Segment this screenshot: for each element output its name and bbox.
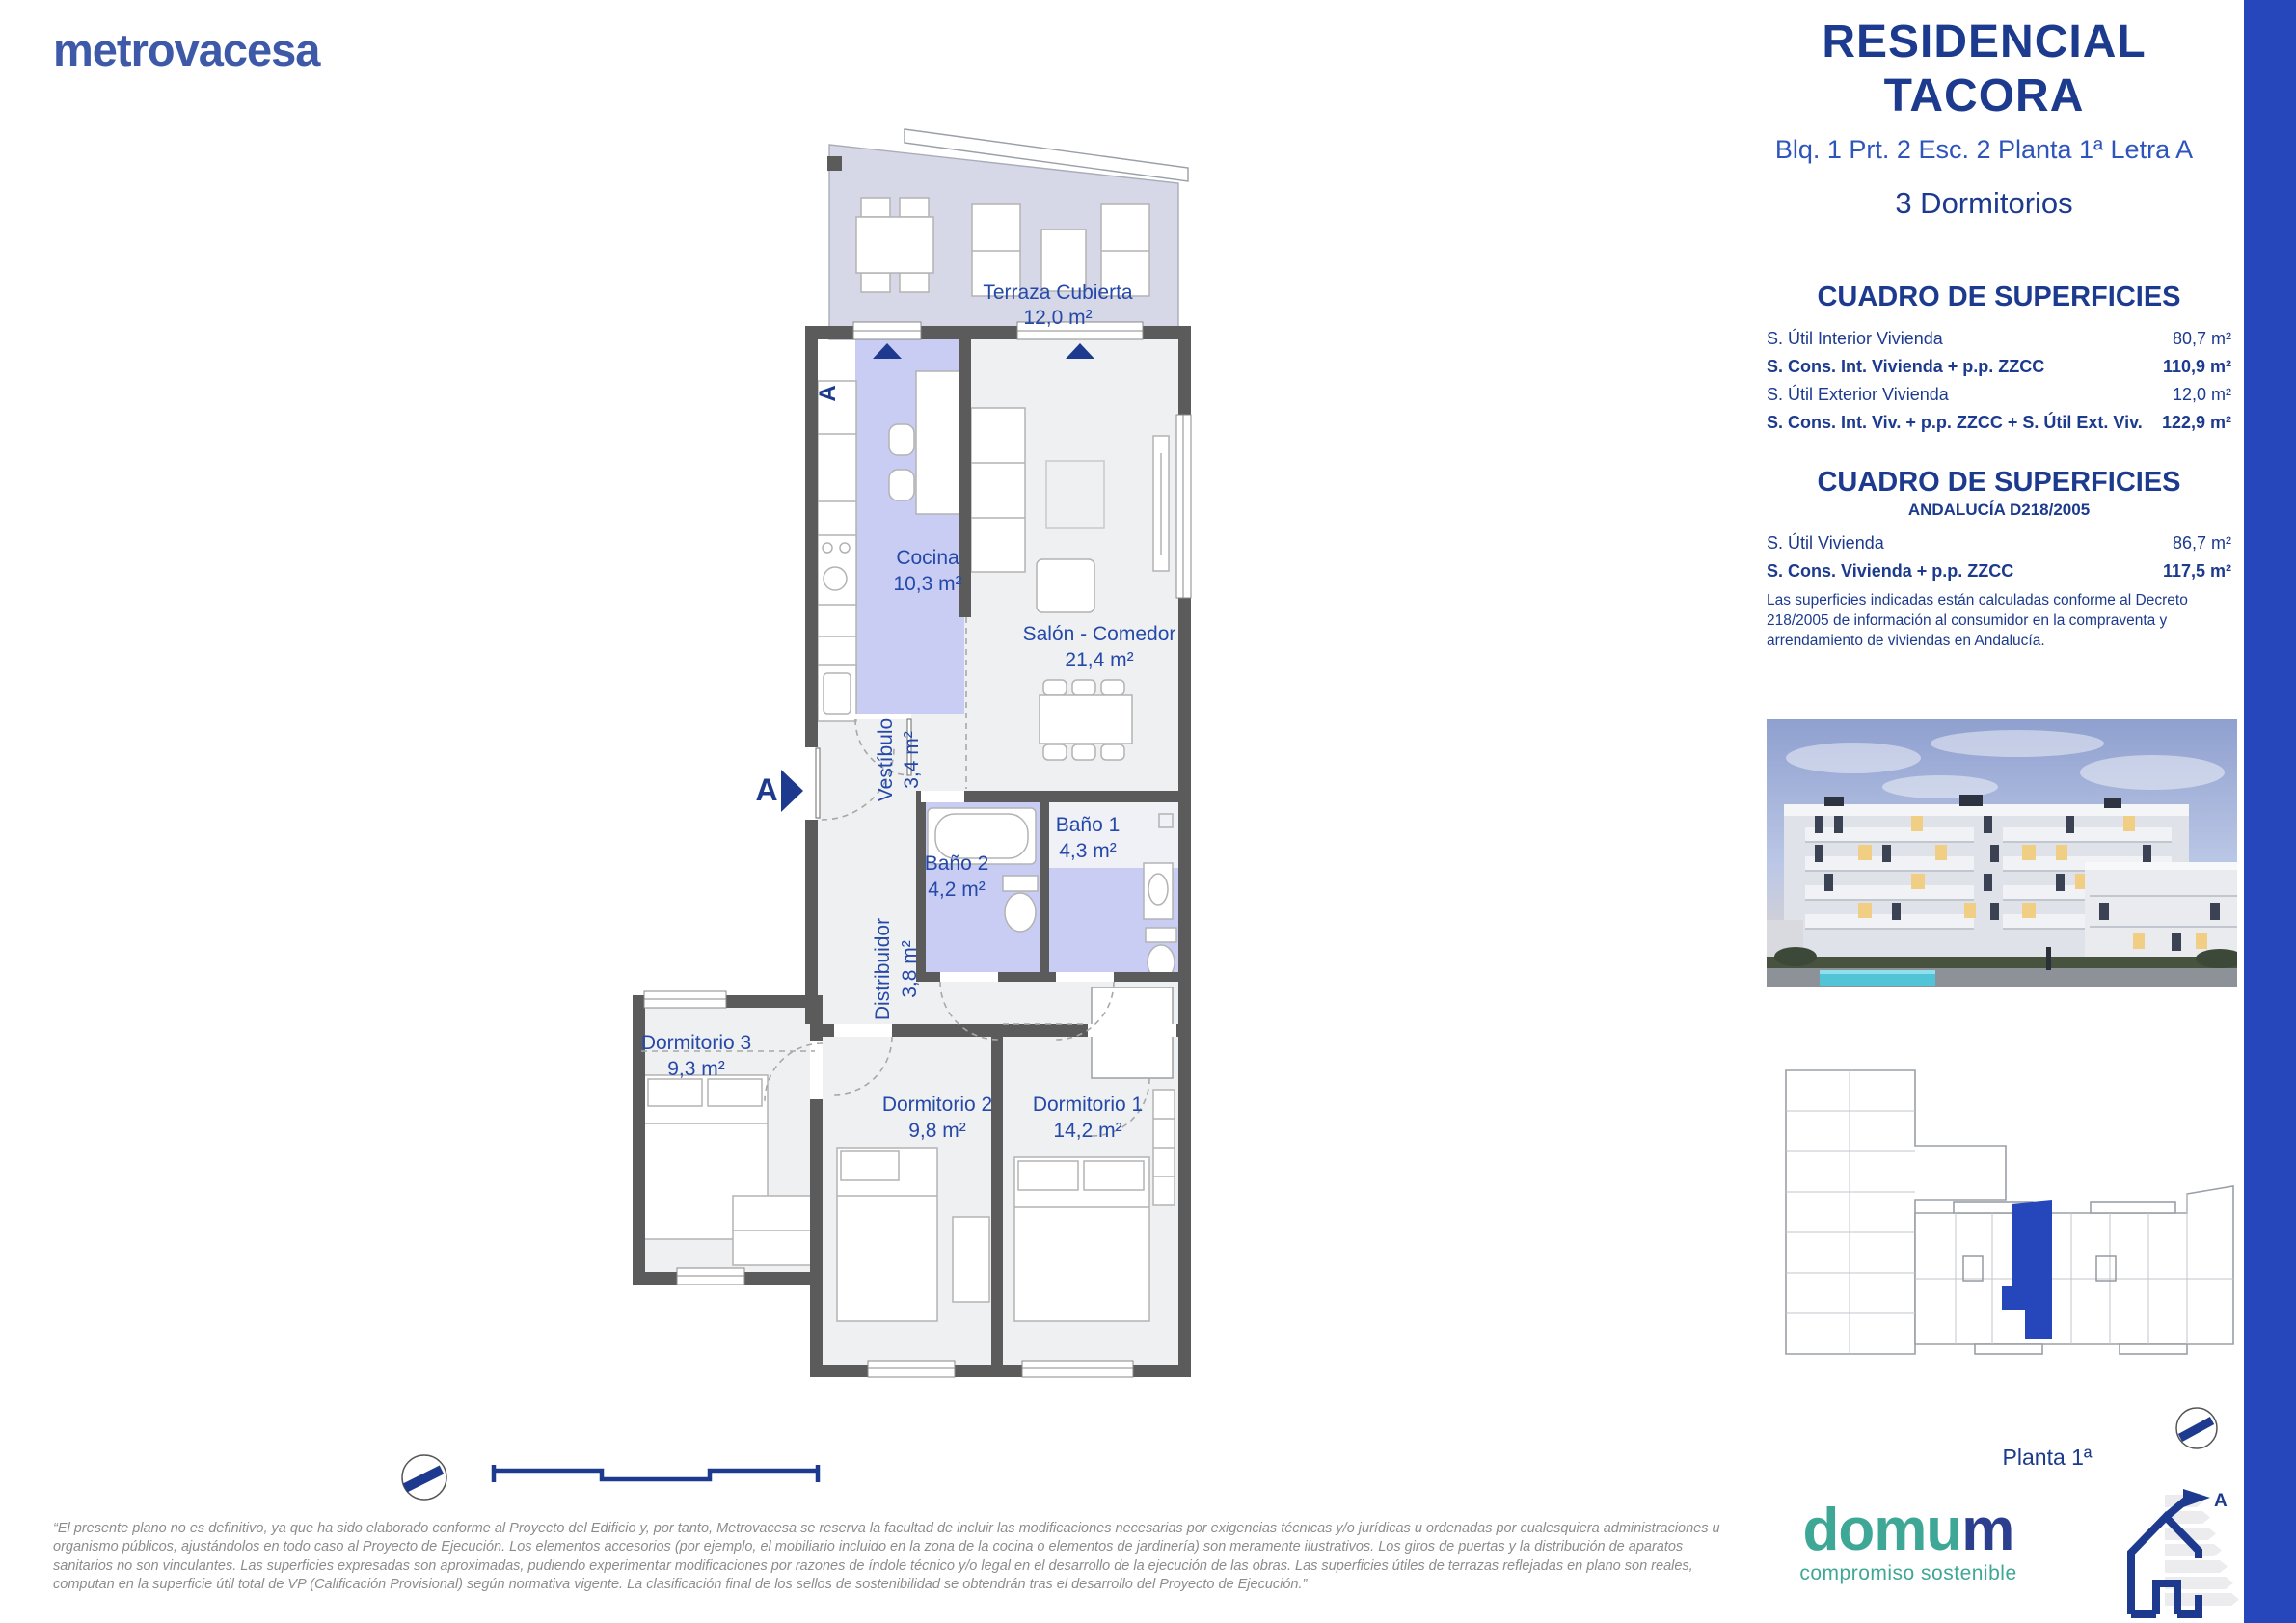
label-dormitorio1-area: 14,2 m² [1053,1120,1121,1142]
label-dormitorio3-name: Dormitorio 3 [641,1032,751,1054]
label-distribuidor-area: 3,8 m² [899,940,921,998]
label-cocina-area: 10,3 m² [893,573,961,595]
label-terraza-area: 12,0 m² [1023,307,1092,329]
label-dormitorio2-area: 9,8 m² [908,1120,966,1142]
label-banyo2-name: Baño 2 [925,852,989,875]
label-vestibulo-name: Vestíbulo [875,718,897,801]
compass-icon [402,1455,446,1500]
label-vestibulo-area: 3,4 m² [901,731,923,789]
svg-text:A: A [755,772,777,807]
compass-icon-right [2176,1408,2217,1448]
scale-bar [494,1465,818,1482]
label-banyo2-area: 4,2 m² [928,879,986,901]
label-cocina-name: Cocina [896,547,959,569]
floor-plan: A A Terraza Cubierta 12,0 m² Cocina 10,3… [0,0,2296,1623]
plan-sheet: metrovacesa RESIDENCIAL TACORA Blq. 1 Pr… [0,0,2296,1623]
label-salon-name: Salón - Comedor [1023,623,1176,645]
label-terraza-name: Terraza Cubierta [983,282,1133,304]
label-dormitorio1-name: Dormitorio 1 [1033,1094,1143,1116]
label-distribuidor-name: Distribuidor [872,918,894,1020]
label-banyo1-area: 4,3 m² [1059,840,1117,862]
label-banyo1-name: Baño 1 [1056,814,1121,836]
label-salon-area: 21,4 m² [1065,649,1133,671]
label-dormitorio3-area: 9,3 m² [667,1058,725,1080]
label-dormitorio2-name: Dormitorio 2 [882,1094,992,1116]
section-marker-top: A [815,385,841,401]
